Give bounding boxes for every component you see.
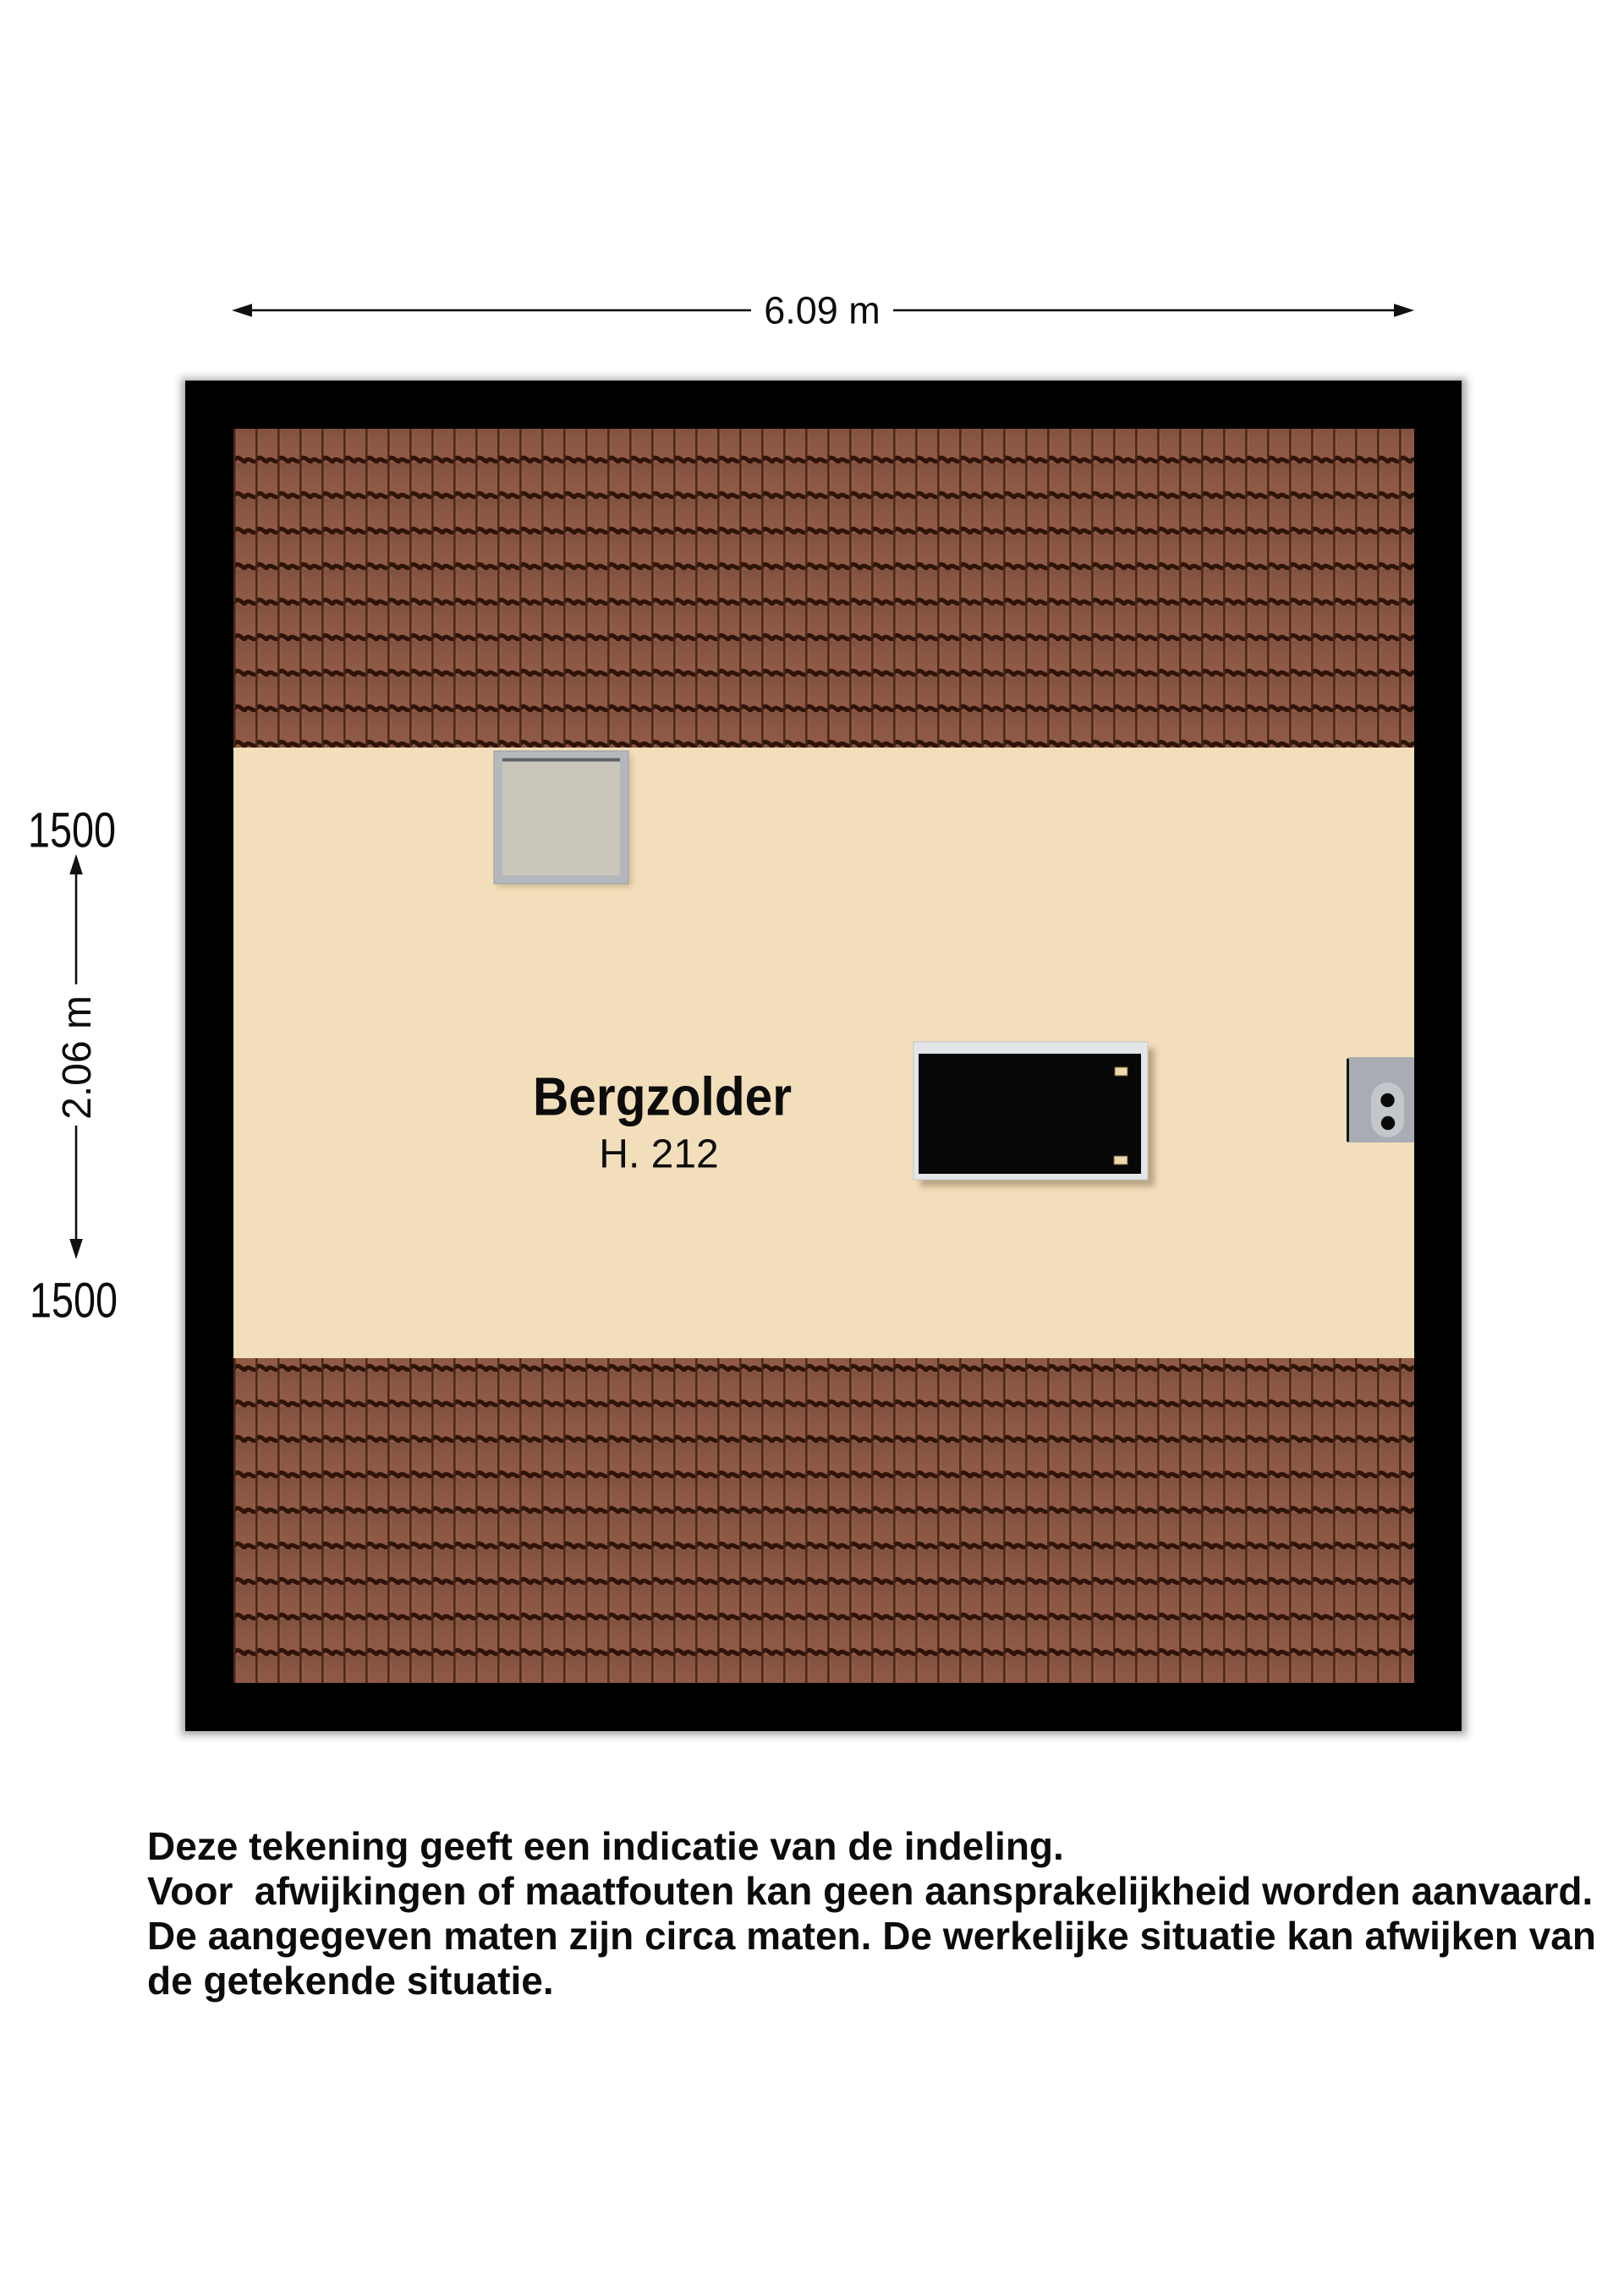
- svg-text:de getekende situatie.: de getekende situatie.: [147, 1959, 554, 2003]
- svg-text:Deze tekening geeft een indica: Deze tekening geeft een indicatie van de…: [147, 1824, 1064, 1868]
- svg-text:De aangegeven maten zijn circa: De aangegeven maten zijn circa maten. De…: [147, 1914, 1596, 1958]
- svg-text:2.06 m: 2.06 m: [55, 995, 100, 1120]
- svg-text:6.09 m: 6.09 m: [764, 289, 881, 332]
- svg-text:Voor afwijkingen of maatfoute: Voor afwijkingen of maatfouten kan geen …: [147, 1869, 1593, 1913]
- svg-text:Bergzolder: Bergzolder: [533, 1066, 792, 1127]
- svg-text:1500: 1500: [28, 803, 116, 858]
- svg-text:H. 212: H. 212: [599, 1132, 718, 1177]
- svg-text:1500: 1500: [30, 1274, 118, 1329]
